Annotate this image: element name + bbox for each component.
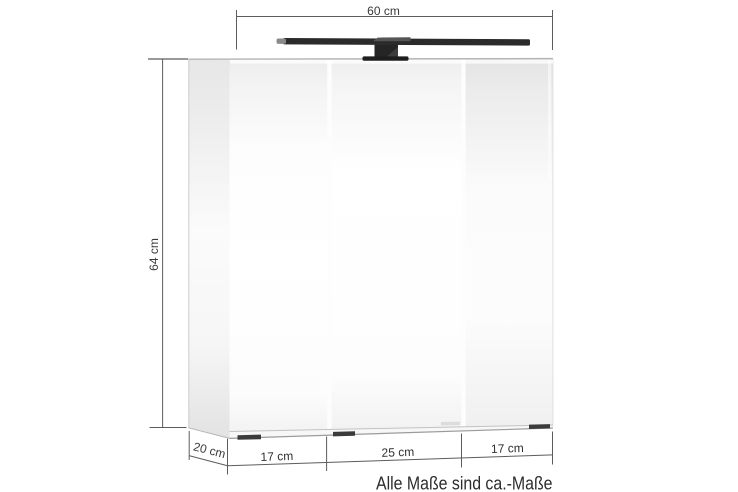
svg-text:25 cm: 25 cm xyxy=(381,445,414,460)
svg-text:17 cm: 17 cm xyxy=(260,449,293,464)
svg-text:60 cm: 60 cm xyxy=(367,4,400,18)
svg-text:17 cm: 17 cm xyxy=(491,441,524,456)
svg-text:64 cm: 64 cm xyxy=(147,238,161,271)
svg-text:Alle Maße sind ca.-Maße: Alle Maße sind ca.-Maße xyxy=(376,473,553,492)
